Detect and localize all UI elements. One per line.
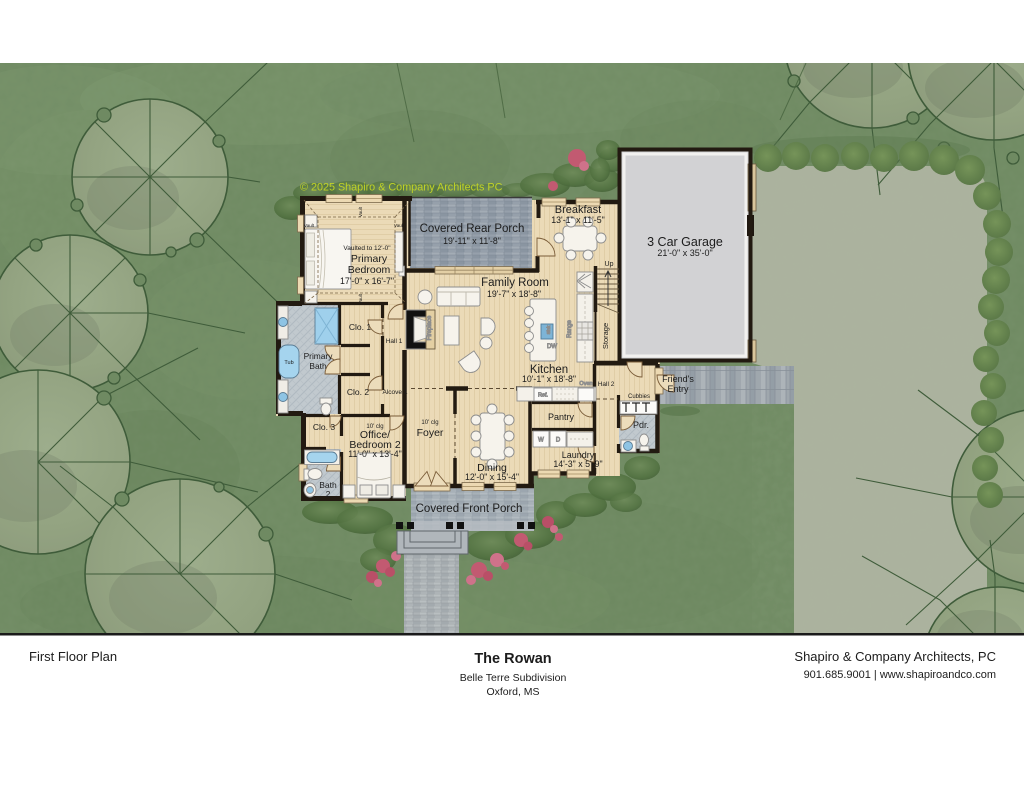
svg-text:19'-11" x 11'-8": 19'-11" x 11'-8" xyxy=(443,236,501,246)
svg-text:Alcove 1: Alcove 1 xyxy=(383,389,408,396)
svg-text:W: W xyxy=(538,438,544,444)
svg-text:Sink: Sink xyxy=(546,325,551,335)
svg-text:Up: Up xyxy=(605,261,614,268)
svg-text:Vault: Vault xyxy=(304,223,315,228)
svg-text:Tub: Tub xyxy=(284,360,293,366)
svg-text:Vault: Vault xyxy=(358,206,363,217)
svg-text:Family Room: Family Room xyxy=(481,277,549,289)
svg-text:Belle Terre Subdivision: Belle Terre Subdivision xyxy=(460,672,567,684)
svg-text:Clo. 3: Clo. 3 xyxy=(313,422,335,432)
svg-text:Covered Rear Porch: Covered Rear Porch xyxy=(420,223,525,235)
svg-text:Pdr.: Pdr. xyxy=(633,420,649,430)
svg-text:Oxford, MS: Oxford, MS xyxy=(486,686,539,698)
svg-text:The Rowan: The Rowan xyxy=(474,651,551,667)
svg-text:13'-1" x 11'-5": 13'-1" x 11'-5" xyxy=(551,215,604,225)
svg-text:10' clg: 10' clg xyxy=(421,420,438,426)
svg-text:14'-3" x 5'-9": 14'-3" x 5'-9" xyxy=(553,459,602,469)
svg-text:19'-7" x 18'-8": 19'-7" x 18'-8" xyxy=(487,289,541,299)
svg-text:Ref.: Ref. xyxy=(538,393,549,399)
svg-text:Hall 1: Hall 1 xyxy=(386,338,403,345)
svg-text:21'-0" x 35'-0": 21'-0" x 35'-0" xyxy=(657,248,712,258)
svg-text:First Floor Plan: First Floor Plan xyxy=(29,649,117,664)
svg-text:Fireplace: Fireplace xyxy=(427,315,433,340)
svg-text:12'-0" x 15'-4": 12'-0" x 15'-4" xyxy=(465,472,519,482)
svg-text:Clo. 1: Clo. 1 xyxy=(349,322,371,332)
svg-text:D: D xyxy=(556,438,561,444)
svg-text:2: 2 xyxy=(326,489,331,499)
svg-text:DW: DW xyxy=(547,344,557,350)
svg-text:Vault: Vault xyxy=(394,223,405,228)
svg-text:Cubbies: Cubbies xyxy=(628,394,650,400)
svg-text:Shapiro & Company Architects,: Shapiro & Company Architects, PC xyxy=(794,649,996,664)
svg-text:© 2025 Shapiro & Company Archi: © 2025 Shapiro & Company Architects PC xyxy=(300,182,503,194)
svg-text:Covered Front Porch: Covered Front Porch xyxy=(416,503,523,515)
svg-text:Foyer: Foyer xyxy=(417,427,444,439)
svg-text:901.685.9001 | www.shapiroandc: 901.685.9001 | www.shapiroandco.com xyxy=(804,669,996,681)
svg-text:Bath: Bath xyxy=(309,361,327,371)
svg-text:Pantry: Pantry xyxy=(548,412,575,422)
svg-text:Entry: Entry xyxy=(667,384,689,394)
svg-text:3 Car Garage: 3 Car Garage xyxy=(647,235,723,249)
svg-text:Vault: Vault xyxy=(358,293,363,304)
svg-text:Bedroom: Bedroom xyxy=(348,264,391,276)
svg-text:Storage: Storage xyxy=(601,323,610,349)
svg-text:Hall 2: Hall 2 xyxy=(598,381,615,388)
svg-text:Primary: Primary xyxy=(304,351,334,361)
svg-text:Vaulted to 12'-0": Vaulted to 12'-0" xyxy=(343,245,391,252)
svg-text:10'-1" x 18'-8": 10'-1" x 18'-8" xyxy=(522,374,576,384)
svg-text:11'-0" x 13'-4": 11'-0" x 13'-4" xyxy=(348,449,401,459)
svg-text:Clo. 2: Clo. 2 xyxy=(347,387,369,397)
svg-text:17'-0" x 16'-7": 17'-0" x 16'-7" xyxy=(340,276,394,286)
svg-text:Range: Range xyxy=(567,320,573,338)
svg-text:Oven: Oven xyxy=(579,381,592,387)
svg-text:Friend's: Friend's xyxy=(662,374,694,384)
